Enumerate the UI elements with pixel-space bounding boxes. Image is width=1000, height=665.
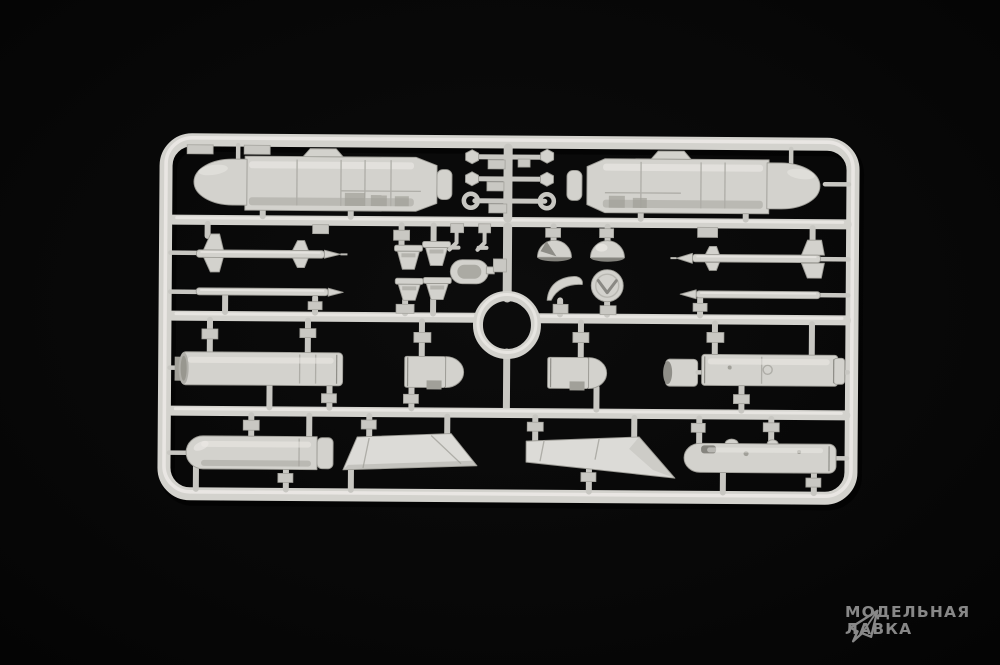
cruise-missile-pod-right: [567, 150, 820, 214]
nozzle-cup-1: [394, 245, 422, 269]
nozzle-cup-3: [395, 278, 423, 300]
missile-half-finned-left: [196, 234, 347, 273]
tube-end-cap: [663, 359, 704, 386]
dome-plain: [590, 241, 624, 262]
wing-panel-left: [343, 433, 477, 471]
intake-ring: [450, 259, 506, 284]
cruise-missile-pod-left: [194, 148, 452, 212]
rod-assembly: [464, 148, 554, 219]
rocket-pod-tube-right: [702, 354, 845, 386]
crescent-shell: [547, 276, 582, 300]
missile-half-plain-right: [680, 290, 820, 300]
sprue-photo: [0, 0, 1000, 665]
bracket-small-1: [449, 224, 463, 250]
wing-panel-right: [526, 436, 675, 478]
nozzle-cup-4: [423, 277, 451, 299]
bracket-small-2: [477, 224, 490, 250]
rocket-pod-tube-left: [175, 352, 343, 386]
watermark: МОДЕЛЬНАЯ ЛАВКА: [845, 604, 970, 638]
missile-half-plain-left: [196, 287, 343, 296]
paper-plane-icon: [845, 604, 881, 648]
nozzle-cup-2: [422, 241, 450, 265]
torpedo-body-half: [684, 439, 836, 474]
disc-cap: [591, 270, 623, 302]
center-ring: [477, 227, 536, 410]
runner-row-middle: [172, 314, 846, 321]
drop-tank-half: [186, 436, 333, 470]
pod-nose-2: [548, 357, 607, 390]
photo-stage: МОДЕЛЬНАЯ ЛАВКА: [0, 0, 1000, 665]
missile-half-finned-right: [670, 239, 824, 278]
dome-sliced: [537, 240, 571, 261]
pod-nose-1: [405, 356, 464, 389]
